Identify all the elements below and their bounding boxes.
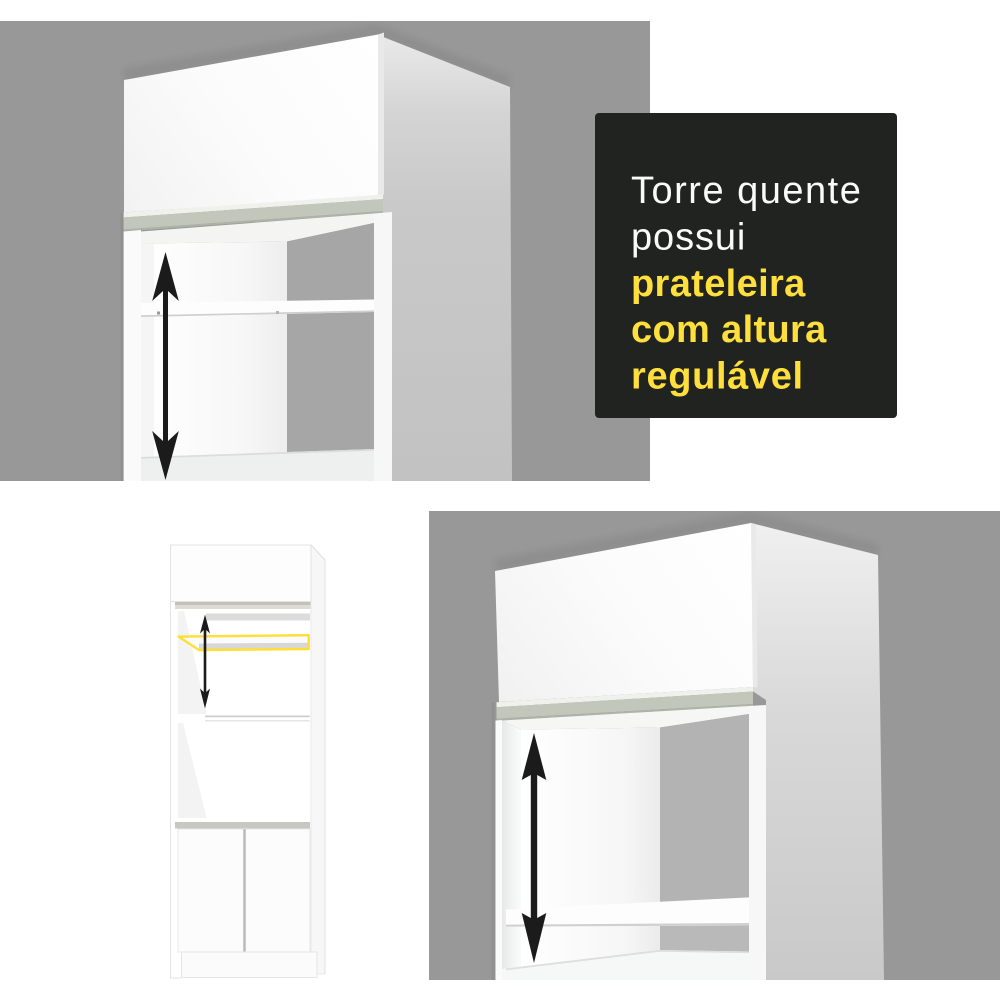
svg-text:regulável: regulável (631, 356, 804, 398)
svg-text:Torre quente: Torre quente (631, 170, 862, 212)
svg-text:prateleira: prateleira (631, 263, 806, 305)
svg-text:com altura: com altura (631, 309, 827, 351)
svg-text:possui: possui (631, 216, 746, 258)
